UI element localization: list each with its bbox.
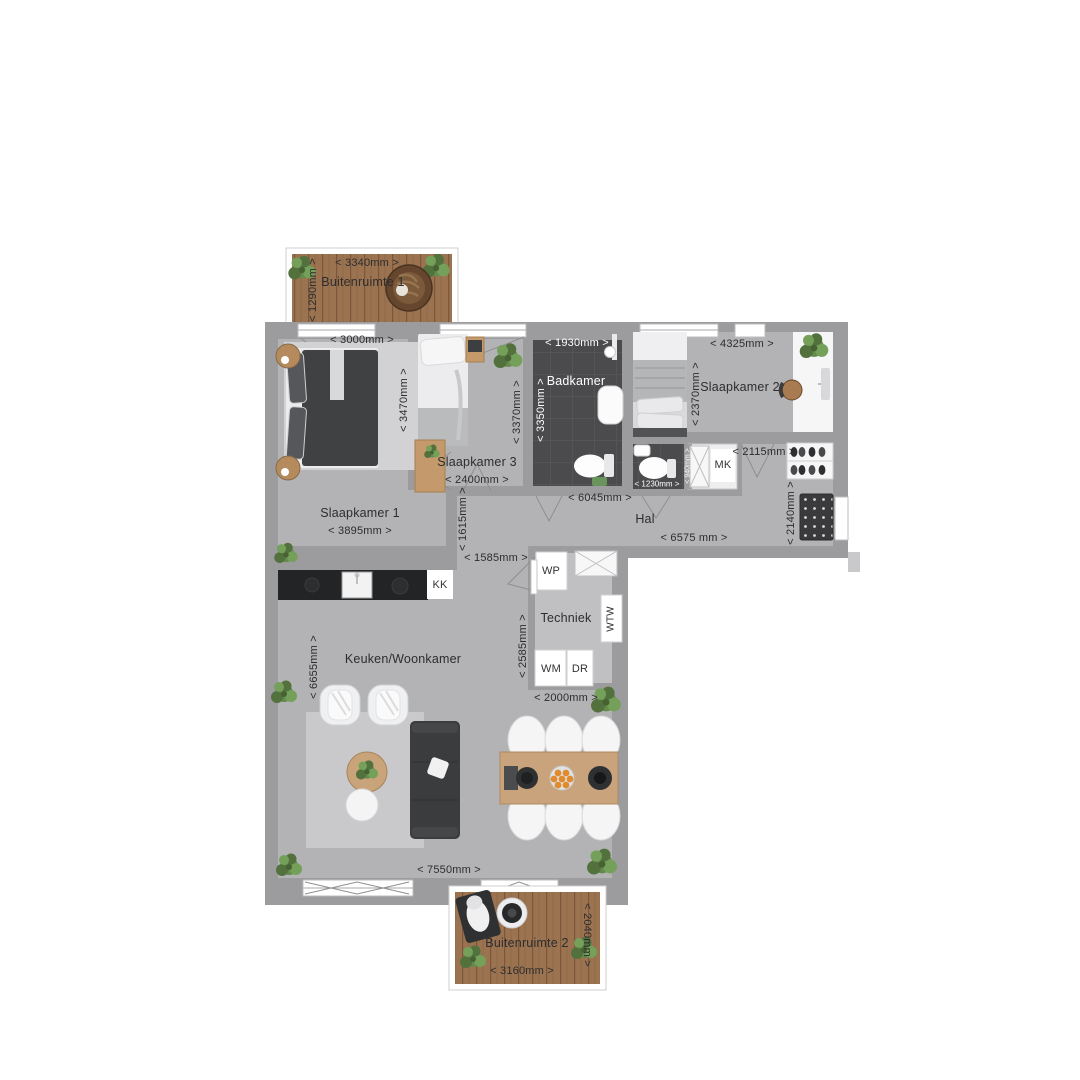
- techniek-height-dim: < 2585mm >: [517, 614, 529, 678]
- wc-toilet: [639, 457, 669, 479]
- hal-closet-dim: < 2115mm >: [733, 446, 796, 458]
- washbasin: [598, 386, 623, 424]
- toilet: [574, 455, 606, 478]
- wc-height-dim: < 940mm >: [685, 448, 692, 483]
- livingroom-width-dim: < 7550mm >: [417, 864, 481, 876]
- side-table-round: [346, 789, 378, 821]
- bedroom1-width2-dim: < 3895mm >: [328, 525, 392, 537]
- dining-set: [500, 716, 620, 840]
- hal-label: Hal: [635, 512, 654, 526]
- balcony2-depth-dim: < 2040mm >: [581, 903, 593, 967]
- balcony1-depth-dim: < 1290mm >: [307, 258, 319, 322]
- balcony1-label: Buitenruimte 1: [321, 275, 404, 289]
- bathroom-label: Badkamer: [547, 374, 606, 388]
- bedroom2-label: Slaapkamer 2: [700, 380, 780, 394]
- kitchen-counter: [278, 570, 453, 600]
- hal-upper-dim: < 6045mm >: [568, 492, 632, 504]
- dr-label: DR: [572, 663, 588, 675]
- balcony2-label: Buitenruimte 2: [485, 936, 568, 950]
- hal-entry-dim: < 2140mm >: [785, 481, 797, 545]
- bedroom3-height-dim: < 3370mm >: [511, 380, 523, 444]
- kk-label: KK: [432, 579, 447, 591]
- techniek-label: Techniek: [541, 611, 592, 625]
- balcony1-width-dim: < 3340mm >: [335, 257, 399, 269]
- bedroom1-label: Slaapkamer 1: [320, 506, 400, 520]
- wm-label: WM: [541, 663, 561, 675]
- wc-basin: [634, 445, 650, 456]
- livingroom-height-dim: < 6655mm >: [308, 635, 320, 699]
- balcony2-width-dim: < 3160mm >: [490, 965, 554, 977]
- hal-passage-dim: < 1585mm >: [464, 552, 528, 564]
- nightstand: [276, 344, 300, 368]
- livingroom-label: Keuken/Woonkamer: [345, 652, 461, 666]
- bath-mat: [592, 477, 607, 486]
- bedroom2-height-dim: < 2370mm >: [690, 362, 702, 426]
- hal-lower-dim: < 6575 mm >: [660, 532, 727, 544]
- bedroom1-height-dim: < 3470mm >: [398, 368, 410, 432]
- nightstand: [276, 456, 300, 480]
- monitor: [821, 368, 830, 400]
- wtw-label: WTW: [606, 606, 617, 632]
- bedroom3-width-dim: < 2400mm >: [445, 474, 509, 486]
- bathroom-width-dim: < 1930mm >: [545, 337, 609, 349]
- floor-plan-graphics: [0, 0, 1080, 1080]
- hal-leg-dim: < 1615mm >: [457, 487, 469, 551]
- bedroom2-width-dim: < 4325mm >: [710, 338, 774, 350]
- entrance-door: [835, 497, 848, 540]
- doormat: [800, 494, 833, 540]
- bedroom1-width-dim: < 3000mm >: [330, 334, 394, 346]
- bedroom3-label: Slaapkamer 3: [437, 455, 517, 469]
- wc-width-dim: < 1230mm >: [635, 480, 680, 489]
- techniek-width-dim: < 2000mm >: [534, 692, 598, 704]
- sofa: [410, 721, 460, 839]
- desk-stool: [782, 380, 802, 400]
- bathroom-height-dim: < 3350mm >: [535, 378, 547, 442]
- floor-plan: < 3340mm > < 1290mm > Buitenruimte 1 < 3…: [0, 0, 1080, 1080]
- wp-label: WP: [542, 565, 560, 577]
- mk-label: MK: [715, 459, 732, 471]
